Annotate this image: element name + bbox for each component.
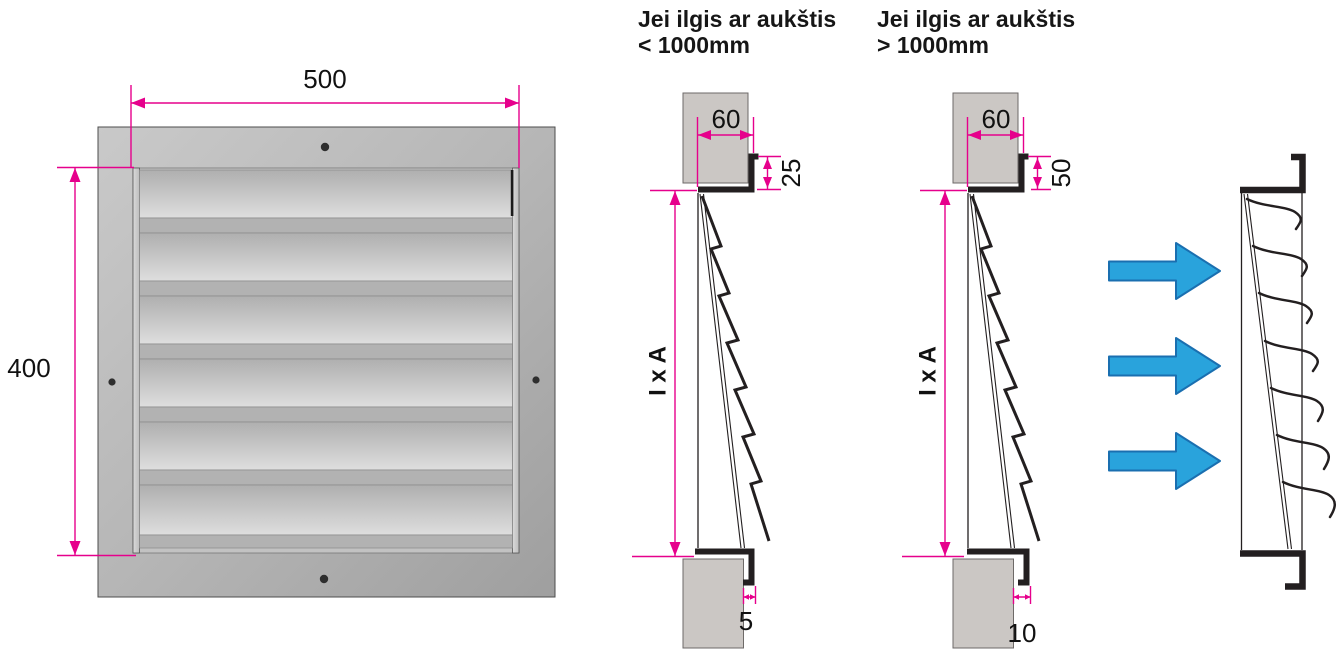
louver-slats — [140, 170, 514, 548]
hole-dot — [321, 143, 329, 151]
left-rail — [133, 168, 140, 553]
depth-dim-label: 60 — [982, 104, 1011, 134]
front-view-grille: 500 400 — [7, 64, 555, 597]
gap-dim-label: 5 — [739, 606, 753, 636]
airflow-arrow-icon — [1109, 433, 1220, 489]
blade — [1283, 482, 1335, 517]
slat-strip — [140, 344, 513, 359]
hole-dot — [532, 376, 539, 383]
width-dim-label: 500 — [303, 64, 346, 94]
depth-dim-label: 60 — [712, 104, 741, 134]
flange-dim-label: 50 — [1046, 159, 1076, 188]
drawing-canvas: 500 400 Jei ilgis ar aukštis < 1000mm 60 — [0, 0, 1343, 653]
arrowhead-bottom — [70, 541, 81, 555]
dimension-span-ixa-large: I x A — [902, 191, 967, 557]
arrowhead-left — [131, 98, 145, 109]
blade — [1259, 293, 1312, 323]
slat-strip — [140, 281, 513, 296]
section-view-gt-1000: Jei ilgis ar aukštis > 1000mm 60 50 — [877, 6, 1076, 648]
mounting-bracket-top — [1240, 157, 1303, 190]
span-dim-label: I x A — [915, 346, 942, 396]
blade — [1253, 246, 1307, 276]
arrowhead-right — [505, 98, 519, 109]
blade — [1277, 435, 1329, 469]
dimension-flange-50: 50 — [1028, 157, 1076, 190]
slat-corner-line — [511, 170, 514, 216]
hole-dot — [108, 378, 115, 385]
height-dim-label: 400 — [7, 353, 50, 383]
wall-block-bottom — [953, 559, 1014, 648]
flange-dim-label: 25 — [776, 159, 806, 188]
right-rail — [513, 168, 520, 553]
slat-strip — [140, 218, 513, 233]
slat — [140, 359, 513, 407]
section-view-lt-1000: Jei ilgis ar aukštis < 1000mm 60 25 — [632, 6, 836, 648]
span-dim-label: I x A — [645, 346, 672, 396]
section-view-back — [1240, 157, 1335, 587]
louver-grille-technical-drawing: 500 400 Jei ilgis ar aukštis < 1000mm 60 — [0, 0, 1343, 653]
airflow-arrow-icon — [1109, 338, 1220, 394]
hole-dot — [320, 575, 328, 583]
slat — [140, 296, 513, 344]
airflow-arrow-icon — [1109, 243, 1220, 299]
mounting-bracket-bottom — [1240, 554, 1303, 587]
louver-sawtooth-profile — [702, 196, 769, 541]
slat-strip — [140, 470, 513, 485]
blade — [1271, 388, 1323, 421]
arrowhead-top — [70, 168, 81, 182]
slat-strip — [140, 407, 513, 422]
louver-sawtooth-profile — [972, 196, 1039, 541]
dimension-flange-25: 25 — [757, 157, 806, 190]
airflow-view — [1109, 157, 1335, 587]
gap-dim-label: 10 — [1008, 618, 1037, 648]
section-large-title-line1: Jei ilgis ar aukštis — [877, 6, 1075, 32]
slat — [140, 422, 513, 470]
louver-blades — [1247, 199, 1335, 517]
blade — [1265, 341, 1318, 371]
dimension-span-ixa-small: I x A — [632, 191, 697, 557]
section-small-title-line2: < 1000mm — [638, 32, 750, 58]
section-small-title-line1: Jei ilgis ar aukštis — [638, 6, 836, 32]
louver-back-lines — [1244, 194, 1292, 549]
wall-block-bottom — [683, 559, 744, 648]
slat — [140, 170, 513, 218]
slat-strip — [140, 535, 513, 548]
section-large-title-line2: > 1000mm — [877, 32, 989, 58]
slat — [140, 233, 513, 281]
blade — [1247, 199, 1301, 229]
slat — [140, 485, 513, 535]
